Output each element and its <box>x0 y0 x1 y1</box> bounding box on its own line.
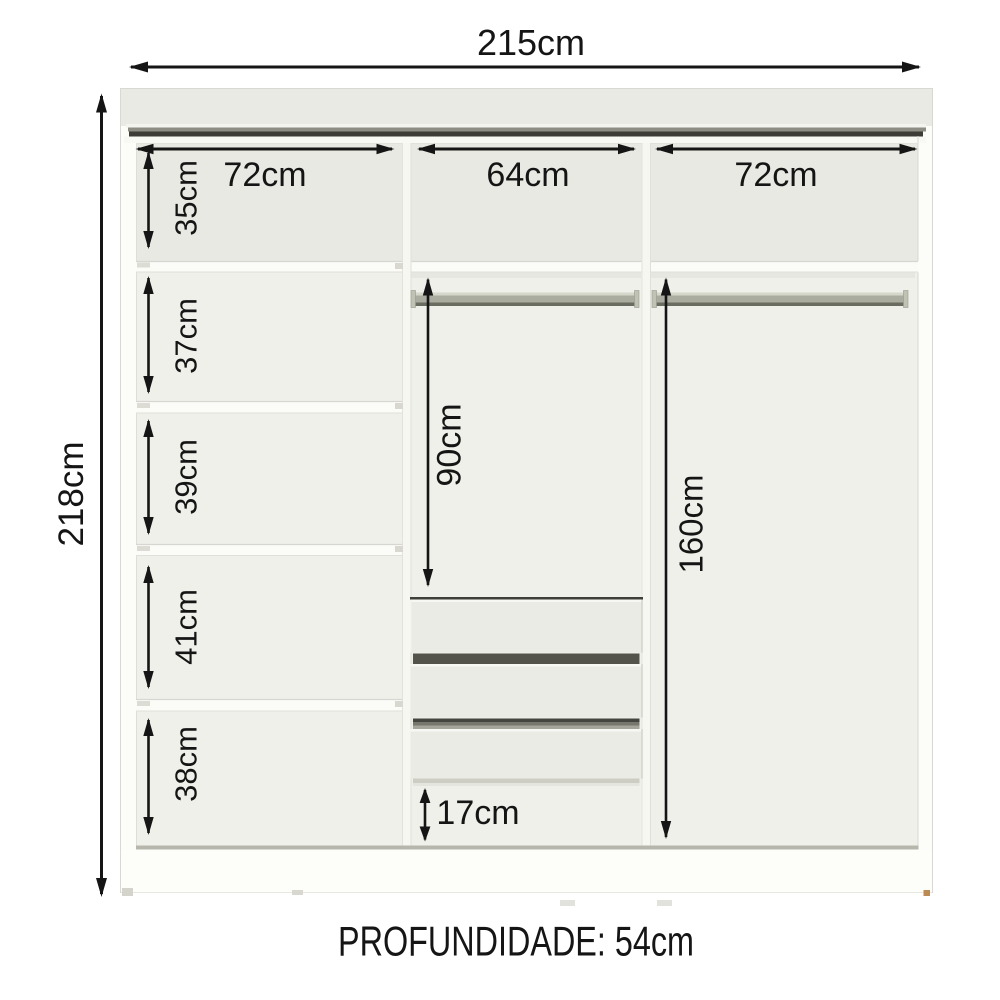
svg-text:64cm: 64cm <box>486 156 569 194</box>
svg-text:17cm: 17cm <box>436 794 519 832</box>
svg-text:41cm: 41cm <box>169 589 204 665</box>
svg-text:160cm: 160cm <box>673 474 710 573</box>
svg-text:38cm: 38cm <box>169 726 204 802</box>
svg-text:37cm: 37cm <box>169 298 204 374</box>
svg-text:35cm: 35cm <box>169 160 204 236</box>
svg-text:215cm: 215cm <box>477 22 585 63</box>
svg-text:72cm: 72cm <box>734 156 817 194</box>
svg-text:72cm: 72cm <box>223 156 306 194</box>
svg-text:PROFUNDIDADE: 54cm: PROFUNDIDADE: 54cm <box>338 918 694 965</box>
svg-text:90cm: 90cm <box>431 403 469 486</box>
svg-text:39cm: 39cm <box>169 439 204 515</box>
svg-text:218cm: 218cm <box>52 441 91 546</box>
